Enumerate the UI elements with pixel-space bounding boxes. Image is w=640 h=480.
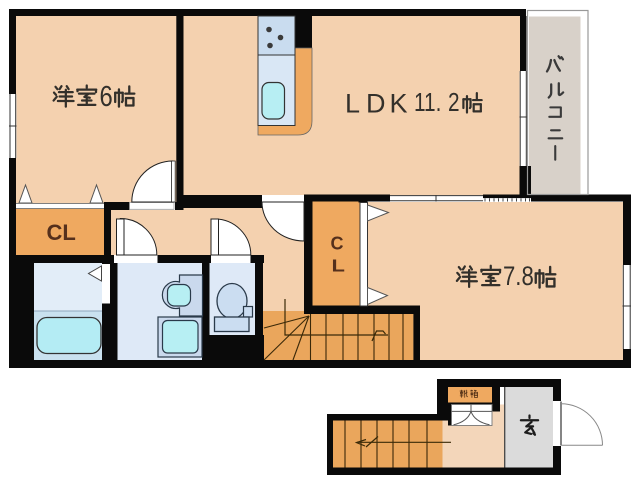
svg-text:L: L (345, 89, 360, 119)
svg-text:C: C (331, 234, 344, 254)
svg-text:D: D (366, 89, 386, 119)
svg-text:6: 6 (100, 80, 113, 113)
svg-text:2: 2 (448, 88, 460, 117)
svg-text:CL: CL (47, 220, 76, 245)
svg-text:L: L (332, 256, 345, 276)
svg-text:K: K (390, 89, 408, 119)
svg-text:7.8: 7.8 (503, 262, 534, 292)
svg-text:11.: 11. (414, 88, 441, 117)
